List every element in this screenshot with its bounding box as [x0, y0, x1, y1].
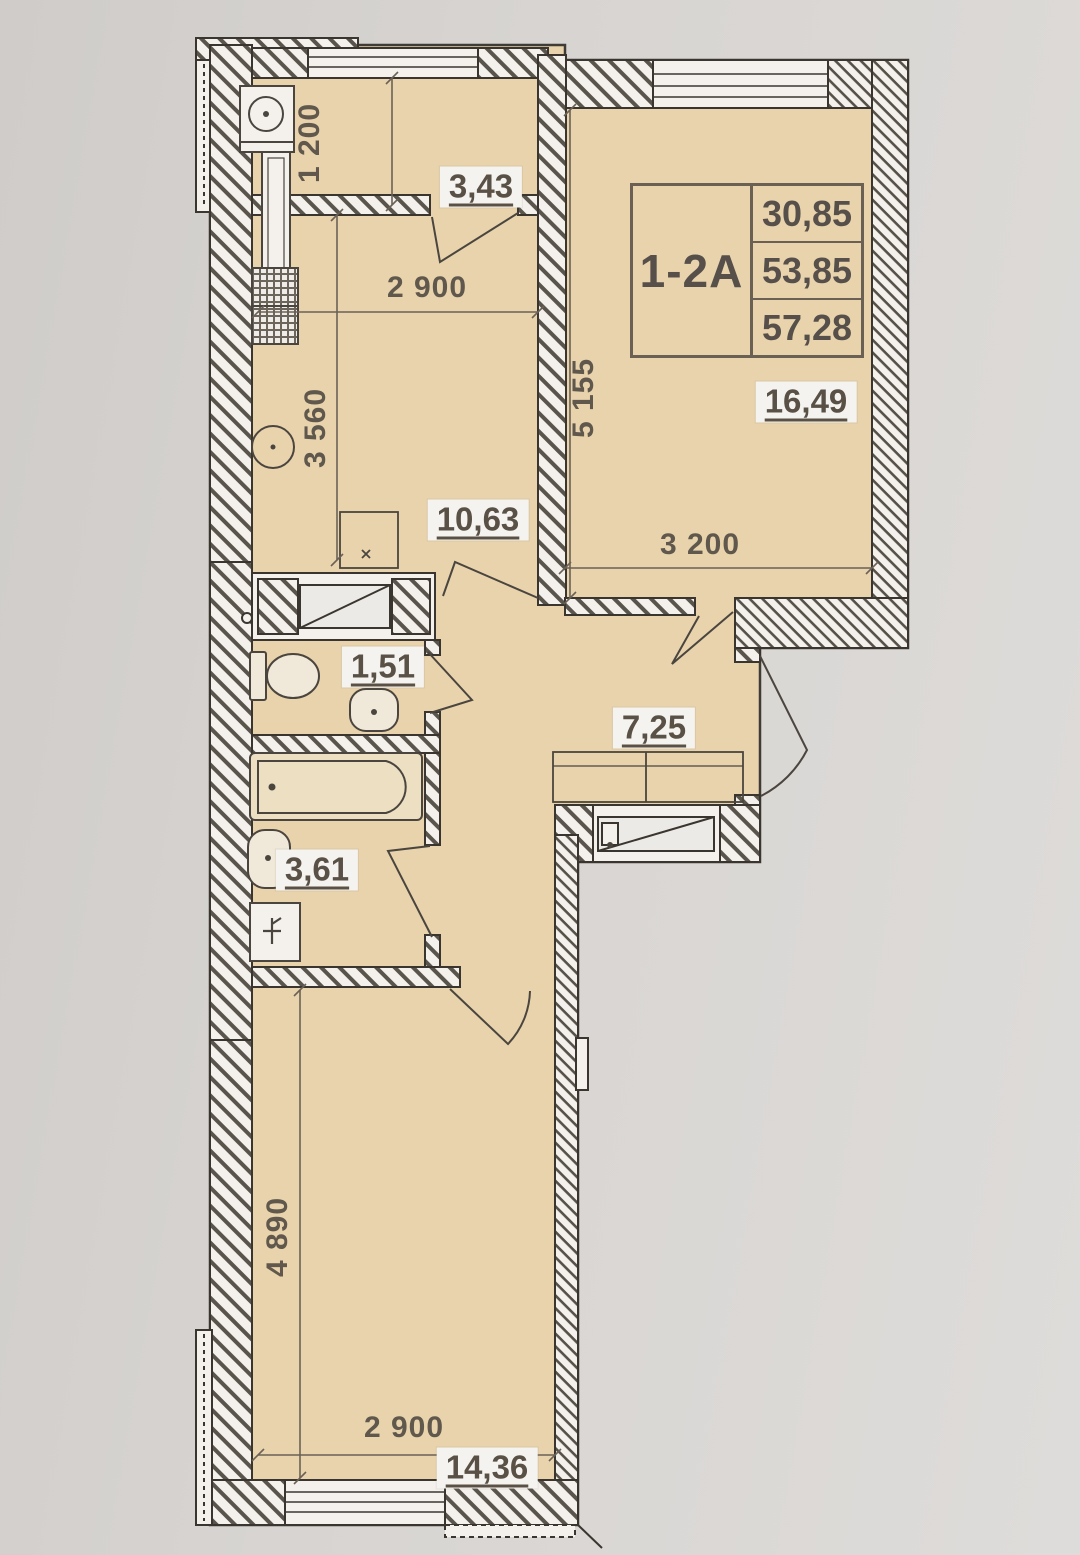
area-label-wc: 1,51 [342, 647, 424, 688]
toilet [250, 652, 319, 700]
balcony-vent-box [240, 86, 294, 152]
unit-number: 1-2A [633, 186, 753, 355]
dim-living-depth: 5 155 [569, 358, 599, 438]
area-label-balcony: 3,43 [440, 167, 522, 208]
dim-bedroom-depth: 4 890 [263, 1197, 293, 1277]
dim-living-width: 3 200 [660, 530, 740, 560]
unit-total-area: 57,28 [753, 300, 861, 355]
dim-bedroom-width: 2 900 [364, 1413, 444, 1443]
dim-kitchen-width: 2 900 [387, 273, 467, 303]
unit-area-no-balcony: 53,85 [753, 243, 861, 300]
kitchen-counter [252, 268, 298, 344]
area-label-bathroom: 3,61 [276, 850, 358, 891]
area-label-bedroom: 14,36 [437, 1448, 538, 1489]
area-label-kitchen: 10,63 [428, 500, 529, 541]
entry-door [760, 656, 807, 796]
wc-sink [350, 689, 398, 731]
unit-info-table: 1-2A 30,85 53,85 57,28 [630, 183, 864, 358]
floorplan-page: 1 200 2 900 3 560 5 155 3 200 4 890 2 90… [0, 0, 1080, 1555]
unit-living-area: 30,85 [753, 186, 861, 243]
washing-machine [250, 903, 300, 961]
dim-balcony-width: 1 200 [295, 103, 325, 183]
area-label-hall: 7,25 [613, 708, 695, 749]
floor-plan-drawing [0, 0, 1080, 1555]
dim-kitchen-depth: 3 560 [301, 388, 331, 468]
bathtub [250, 753, 422, 820]
area-label-living-room: 16,49 [756, 382, 857, 423]
